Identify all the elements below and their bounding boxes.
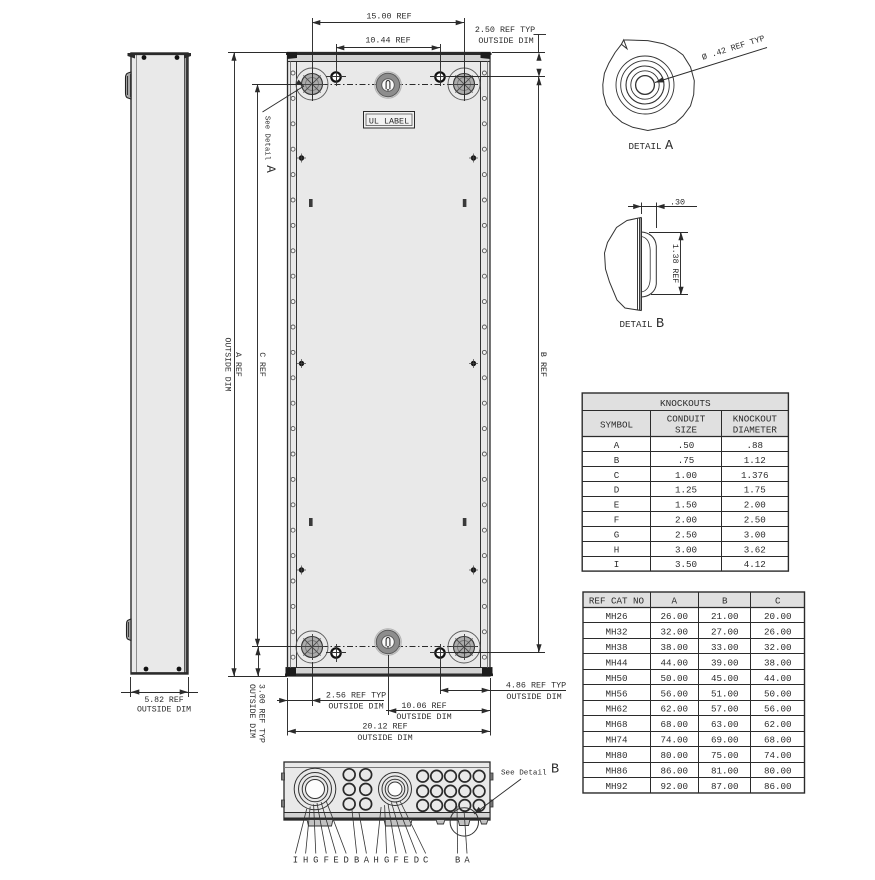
svg-text:2.50 REF TYP: 2.50 REF TYP (475, 25, 535, 35)
svg-text:80.00: 80.00 (764, 766, 792, 777)
svg-text:OUTSIDE DIM: OUTSIDE DIM (247, 684, 256, 738)
svg-text:45.00: 45.00 (711, 673, 739, 684)
svg-text:G: G (313, 856, 318, 866)
svg-text:33.00: 33.00 (711, 642, 739, 653)
svg-text:A: A (614, 440, 620, 451)
svg-text:1.25: 1.25 (675, 485, 697, 496)
svg-text:A: A (464, 856, 470, 866)
svg-text:C: C (614, 470, 620, 481)
svg-text:68.00: 68.00 (764, 735, 792, 746)
svg-text:5.82 REF: 5.82 REF (144, 696, 183, 705)
svg-text:75.00: 75.00 (711, 750, 739, 761)
svg-text:C: C (775, 596, 781, 607)
svg-text:KNOCKOUT: KNOCKOUT (733, 414, 778, 425)
svg-text:56.00: 56.00 (660, 688, 688, 699)
svg-text:69.00: 69.00 (711, 735, 739, 746)
svg-text:A: A (665, 139, 674, 154)
svg-text:56.00: 56.00 (764, 704, 792, 715)
svg-text:C REF: C REF (257, 352, 266, 377)
svg-text:1.50: 1.50 (675, 500, 697, 511)
svg-text:86.00: 86.00 (660, 766, 688, 777)
svg-text:B REF: B REF (538, 352, 548, 377)
svg-text:62.00: 62.00 (764, 719, 792, 730)
svg-text:B: B (614, 455, 620, 466)
svg-text:10.44 REF: 10.44 REF (365, 36, 410, 46)
svg-text:86.00: 86.00 (764, 781, 792, 792)
svg-text:4.12: 4.12 (744, 559, 766, 570)
svg-text:OUTSIDE DIM: OUTSIDE DIM (137, 706, 191, 715)
svg-text:OUTSIDE DIM: OUTSIDE DIM (357, 733, 412, 743)
svg-text:F: F (614, 515, 620, 526)
svg-text:.30: .30 (670, 198, 685, 208)
svg-text:H: H (303, 856, 308, 866)
svg-text:H: H (614, 544, 620, 555)
svg-text:G: G (384, 856, 389, 866)
svg-text:81.00: 81.00 (711, 766, 739, 777)
svg-text:OUTSIDE DIM: OUTSIDE DIM (478, 36, 533, 46)
svg-text:2.00: 2.00 (744, 500, 766, 511)
svg-text:MH50: MH50 (605, 673, 627, 684)
svg-text:87.00: 87.00 (711, 781, 739, 792)
svg-text:38.00: 38.00 (660, 642, 688, 653)
svg-text:MH62: MH62 (605, 704, 627, 715)
svg-text:H: H (374, 856, 379, 866)
svg-text:3.00 REF TYP: 3.00 REF TYP (257, 684, 266, 743)
svg-text:50.00: 50.00 (764, 688, 792, 699)
svg-text:SYMBOL: SYMBOL (600, 420, 633, 431)
svg-text:15.00 REF: 15.00 REF (366, 12, 411, 22)
svg-text:63.00: 63.00 (711, 719, 739, 730)
svg-text:MH86: MH86 (605, 766, 627, 777)
svg-text:3.62: 3.62 (744, 544, 766, 555)
svg-text:57.00: 57.00 (711, 704, 739, 715)
svg-text:C: C (423, 856, 428, 866)
svg-text:51.00: 51.00 (711, 688, 739, 699)
svg-text:1.75: 1.75 (744, 485, 766, 496)
svg-text:E: E (614, 500, 620, 511)
svg-text:See Detail: See Detail (501, 770, 547, 778)
svg-text:.50: .50 (678, 440, 695, 451)
svg-text:26.00: 26.00 (764, 626, 792, 637)
svg-text:A: A (671, 596, 677, 607)
svg-text:I: I (614, 559, 620, 570)
svg-text:21.00: 21.00 (711, 611, 739, 622)
svg-text:32.00: 32.00 (764, 642, 792, 653)
svg-text:74.00: 74.00 (660, 735, 688, 746)
svg-text:A: A (263, 165, 277, 173)
svg-text:1.00: 1.00 (675, 470, 697, 481)
svg-text:MH56: MH56 (605, 688, 627, 699)
svg-text:20.12 REF: 20.12 REF (362, 721, 407, 731)
svg-text:27.00: 27.00 (711, 626, 739, 637)
svg-text:SIZE: SIZE (675, 425, 698, 436)
svg-text:MH80: MH80 (605, 750, 627, 761)
svg-text:KNOCKOUTS: KNOCKOUTS (660, 398, 711, 409)
svg-text:68.00: 68.00 (660, 719, 688, 730)
svg-text:B: B (551, 763, 559, 778)
svg-text:OUTSIDE DIM: OUTSIDE DIM (506, 692, 561, 702)
svg-text:4.86 REF TYP: 4.86 REF TYP (506, 680, 566, 690)
svg-text:F: F (324, 856, 329, 866)
svg-text:3.00: 3.00 (744, 529, 766, 540)
svg-text:2.50: 2.50 (675, 529, 697, 540)
svg-text:39.00: 39.00 (711, 657, 739, 668)
svg-text:1.376: 1.376 (741, 470, 769, 481)
svg-text:B: B (656, 317, 664, 332)
svg-text:1.12: 1.12 (744, 455, 766, 466)
svg-text:A: A (364, 856, 370, 866)
svg-text:MH74: MH74 (605, 735, 628, 746)
svg-text:26.00: 26.00 (660, 611, 688, 622)
svg-text:OUTSIDE DIM: OUTSIDE DIM (328, 702, 383, 712)
svg-text:MH26: MH26 (605, 611, 627, 622)
svg-text:B: B (354, 856, 359, 866)
svg-text:MH32: MH32 (605, 626, 627, 637)
svg-text:D: D (414, 856, 419, 866)
svg-text:38.00: 38.00 (764, 657, 792, 668)
svg-text:44.00: 44.00 (764, 673, 792, 684)
svg-text:2.00: 2.00 (675, 515, 697, 526)
svg-text:2.50: 2.50 (744, 515, 766, 526)
svg-text:3.50: 3.50 (675, 559, 697, 570)
svg-text:80.00: 80.00 (660, 750, 688, 761)
svg-text:DETAIL: DETAIL (628, 141, 661, 152)
svg-text:62.00: 62.00 (660, 704, 688, 715)
svg-text:I: I (293, 856, 298, 866)
svg-text:10.06 REF: 10.06 REF (401, 701, 446, 711)
svg-text:MH92: MH92 (605, 781, 627, 792)
svg-text:A REF: A REF (233, 352, 242, 377)
svg-text:44.00: 44.00 (660, 657, 688, 668)
svg-text:32.00: 32.00 (660, 626, 688, 637)
svg-text:.75: .75 (678, 455, 695, 466)
svg-text:D: D (344, 856, 349, 866)
svg-text:.88: .88 (747, 440, 764, 451)
svg-text:MH44: MH44 (605, 657, 628, 668)
svg-text:D: D (614, 485, 620, 496)
svg-text:B: B (722, 596, 728, 607)
svg-text:3.00: 3.00 (675, 544, 697, 555)
svg-text:74.00: 74.00 (764, 750, 792, 761)
svg-text:92.00: 92.00 (660, 781, 688, 792)
svg-text:REF CAT NO: REF CAT NO (589, 596, 645, 607)
svg-text:50.00: 50.00 (660, 673, 688, 684)
svg-text:1.38 REF: 1.38 REF (670, 244, 679, 283)
svg-text:UL LABEL: UL LABEL (369, 117, 409, 127)
svg-text:2.56 REF TYP: 2.56 REF TYP (326, 691, 386, 701)
svg-text:MH68: MH68 (605, 719, 627, 730)
svg-text:See Detail: See Detail (262, 116, 270, 161)
svg-text:DETAIL: DETAIL (619, 319, 652, 330)
svg-text:E: E (333, 856, 338, 866)
svg-text:F: F (394, 856, 399, 866)
svg-text:G: G (614, 529, 620, 540)
svg-text:CONDUIT: CONDUIT (667, 414, 706, 425)
svg-text:20.00: 20.00 (764, 611, 792, 622)
svg-text:MH38: MH38 (605, 642, 627, 653)
svg-text:B: B (455, 856, 460, 866)
svg-text:OUTSIDE DIM: OUTSIDE DIM (223, 337, 232, 391)
svg-text:OUTSIDE DIM: OUTSIDE DIM (396, 712, 451, 722)
svg-text:E: E (404, 856, 409, 866)
svg-text:DIAMETER: DIAMETER (733, 425, 778, 436)
